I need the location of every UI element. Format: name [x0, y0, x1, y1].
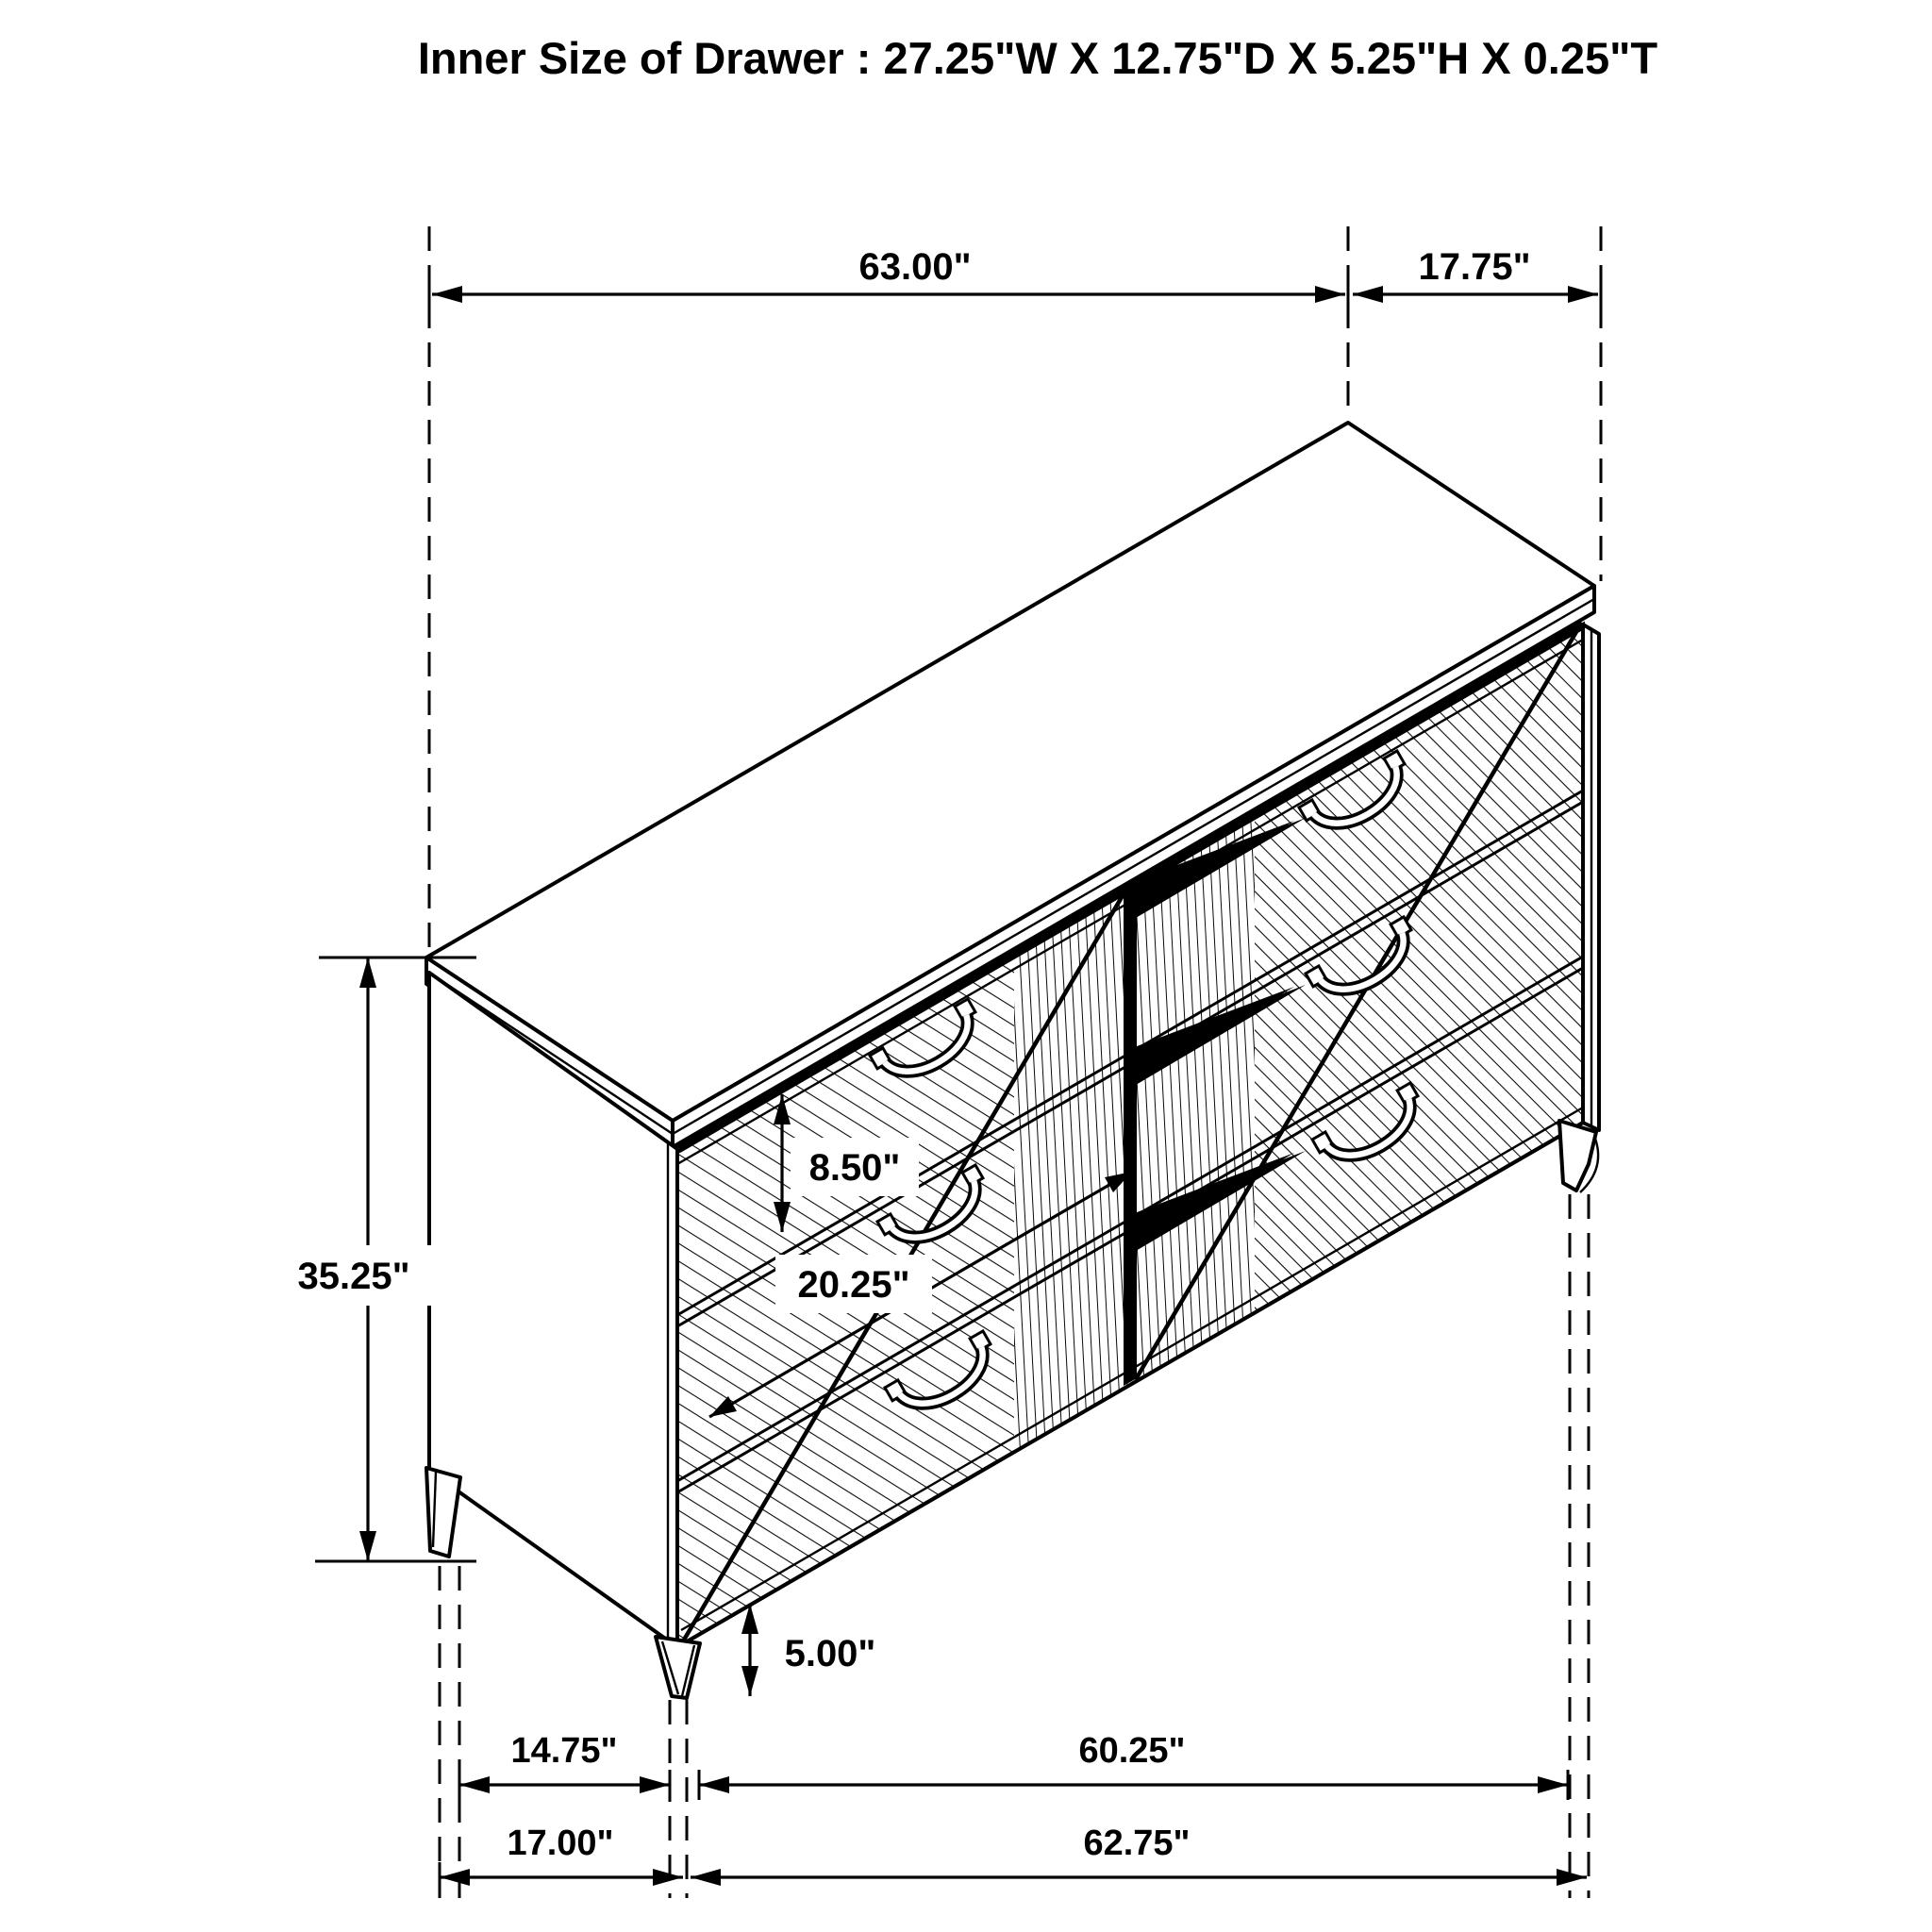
dim-top-depth-label: 17.75" — [1418, 246, 1530, 288]
dim-base-width — [691, 1869, 1587, 1886]
center-divider — [1124, 883, 1137, 1386]
dim-top-width-label: 63.00" — [858, 246, 971, 288]
dimension-drawing-page: 63.00" 17.75" 35.25" 8.50" 20.25" 5.00" … — [0, 0, 1932, 1932]
dim-drawer-width-label: 20.25" — [797, 1264, 909, 1306]
dresser-isometric-drawing: 63.00" 17.75" 35.25" 8.50" 20.25" 5.00" … — [0, 0, 1932, 1932]
dim-drawer-front-height-label: 8.50" — [809, 1147, 901, 1189]
dim-front-leg-spacing-label: 60.25" — [1078, 1731, 1185, 1771]
dresser-body — [426, 423, 1599, 1698]
dim-leg-height-label: 5.00" — [785, 1633, 876, 1674]
right-side-edge — [1583, 625, 1599, 1130]
drawing-title: Inner Size of Drawer : 27.25"W X 12.75"D… — [418, 33, 1658, 83]
dim-side-leg-spacing-label: 14.75" — [510, 1731, 617, 1771]
dim-leg-height — [741, 1604, 758, 1696]
dim-base-depth-label: 17.00" — [507, 1824, 613, 1863]
dim-base-depth — [440, 1862, 683, 1892]
dim-front-leg-spacing — [699, 1770, 1568, 1800]
back-left-leg — [426, 1468, 460, 1557]
dim-side-leg-spacing — [459, 1770, 670, 1800]
dim-overall-height-label: 35.25" — [297, 1256, 409, 1297]
dim-base-width-label: 62.75" — [1083, 1824, 1190, 1863]
